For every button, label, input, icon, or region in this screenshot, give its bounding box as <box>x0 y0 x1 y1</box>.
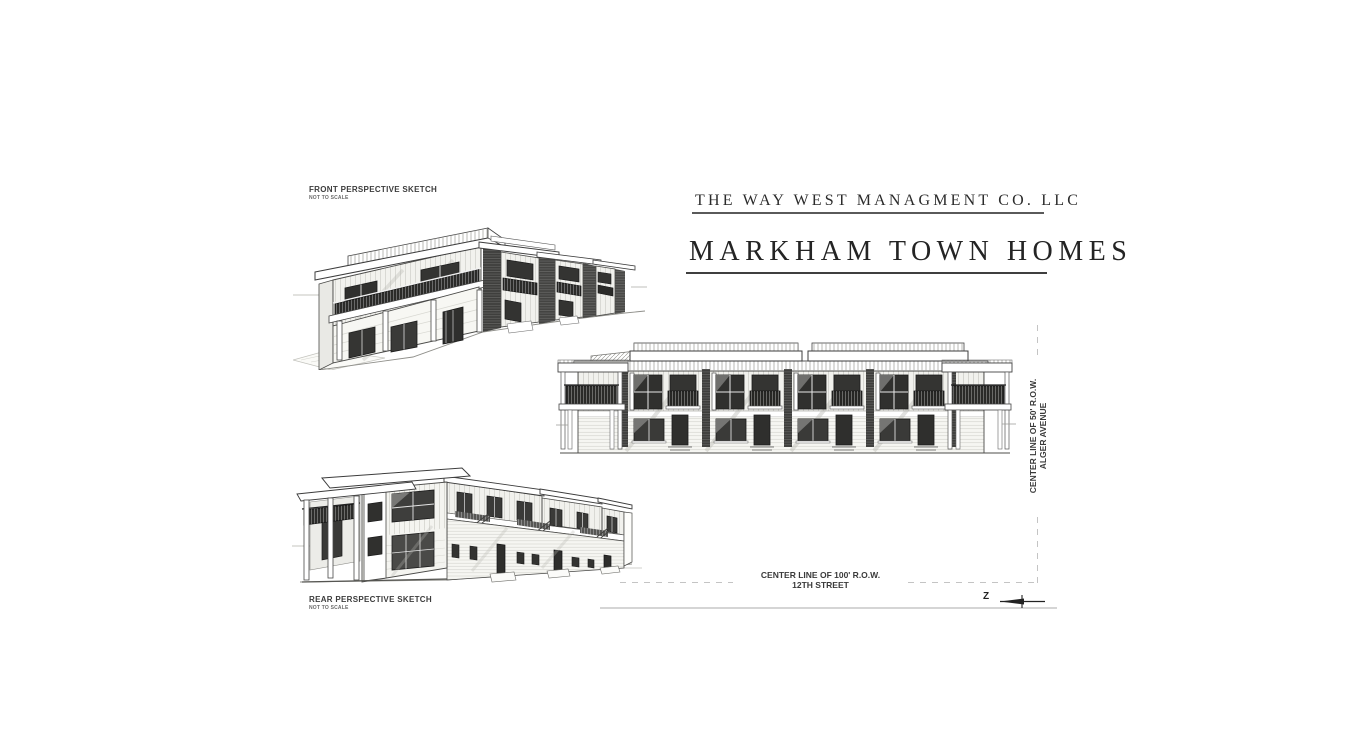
street-12th-line2: 12TH STREET <box>733 580 908 590</box>
street-label-12th-street: CENTER LINE OF 100' R.O.W. 12TH STREET <box>733 570 908 590</box>
project-title: MARKHAM TOWN HOMES <box>689 236 1132 268</box>
rear-sketch-label: REAR PERSPECTIVE SKETCH <box>309 595 432 604</box>
drawing-sheet: FRONT PERSPECTIVE SKETCH NOT TO SCALE <box>0 0 1349 751</box>
street-elevation-drawing <box>556 329 1016 463</box>
rear-perspective-drawing <box>292 456 644 604</box>
street-alger-line1: CENTER LINE OF 50' R.O.W. <box>1028 358 1038 514</box>
rear-sketch-scale-note: NOT TO SCALE <box>309 605 349 611</box>
project-title-underline <box>686 272 1047 274</box>
company-name-underline <box>692 212 1044 214</box>
north-arrow-label: Z <box>983 591 989 602</box>
sheet-border-line <box>600 607 1057 609</box>
street-12th-line1: CENTER LINE OF 100' R.O.W. <box>733 570 908 580</box>
front-sketch-label: FRONT PERSPECTIVE SKETCH <box>309 185 437 194</box>
street-label-alger-avenue: CENTER LINE OF 50' R.O.W. ALGER AVENUE <box>1028 358 1052 514</box>
north-arrow-icon <box>996 592 1048 610</box>
street-alger-line2: ALGER AVENUE <box>1038 358 1048 514</box>
company-name: THE WAY WEST MANAGMENT CO. LLC <box>695 192 1081 210</box>
